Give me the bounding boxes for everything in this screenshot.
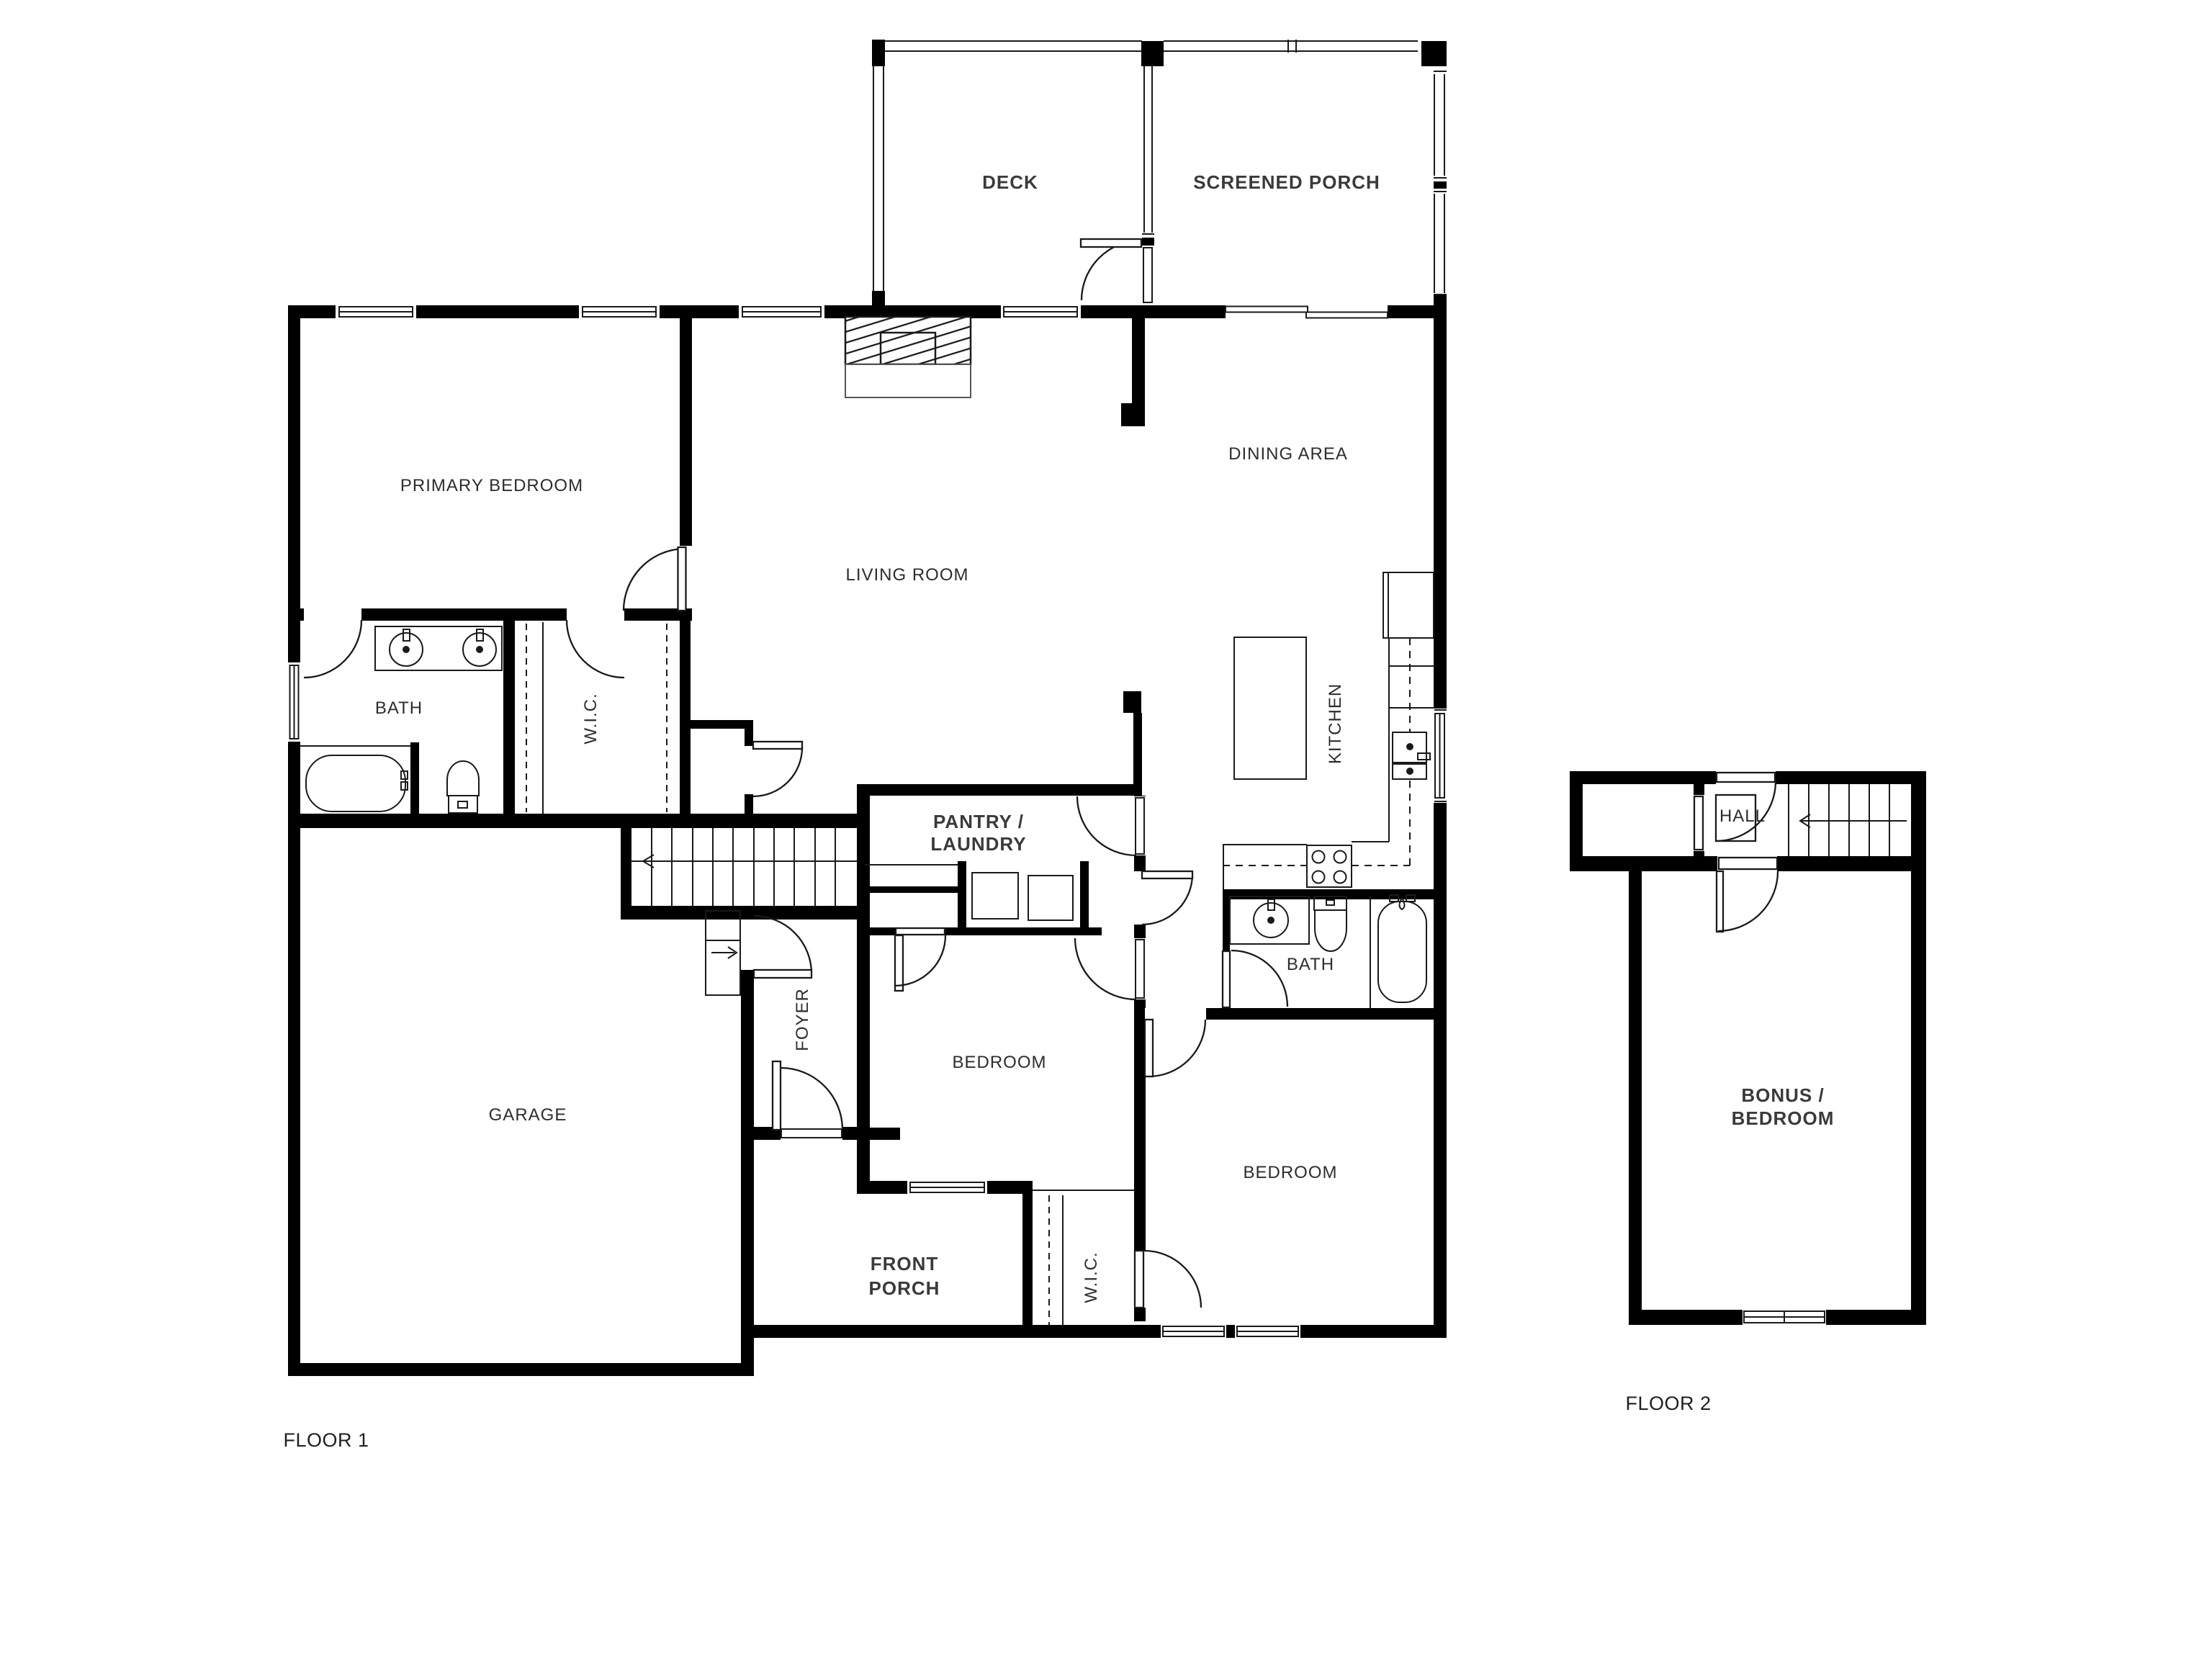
svg-text:FLOOR 2: FLOOR 2: [1625, 1393, 1711, 1414]
svg-text:HALL: HALL: [1719, 806, 1766, 826]
svg-text:PORCH: PORCH: [869, 1277, 940, 1299]
svg-text:PRIMARY BEDROOM: PRIMARY BEDROOM: [400, 476, 583, 495]
svg-text:LAUNDRY: LAUNDRY: [930, 833, 1026, 855]
svg-text:GARAGE: GARAGE: [489, 1105, 567, 1125]
svg-text:W.I.C.: W.I.C.: [1082, 1251, 1101, 1303]
svg-text:KITCHEN: KITCHEN: [1326, 683, 1345, 764]
svg-text:SCREENED PORCH: SCREENED PORCH: [1193, 171, 1380, 193]
svg-text:BATH: BATH: [1287, 955, 1334, 974]
svg-text:PANTRY /: PANTRY /: [933, 811, 1024, 832]
svg-text:FLOOR 1: FLOOR 1: [283, 1429, 369, 1451]
svg-text:DECK: DECK: [982, 171, 1038, 193]
svg-text:BONUS /: BONUS /: [1741, 1084, 1824, 1106]
svg-text:FOYER: FOYER: [793, 988, 812, 1051]
svg-text:FRONT: FRONT: [871, 1253, 939, 1274]
svg-text:BEDROOM: BEDROOM: [952, 1053, 1046, 1072]
svg-text:BATH: BATH: [375, 698, 423, 718]
svg-text:BEDROOM: BEDROOM: [1243, 1163, 1337, 1182]
svg-text:DINING AREA: DINING AREA: [1228, 444, 1348, 464]
svg-text:W.I.C.: W.I.C.: [581, 693, 601, 744]
svg-text:LIVING ROOM: LIVING ROOM: [845, 565, 968, 585]
svg-text:BEDROOM: BEDROOM: [1732, 1107, 1835, 1129]
